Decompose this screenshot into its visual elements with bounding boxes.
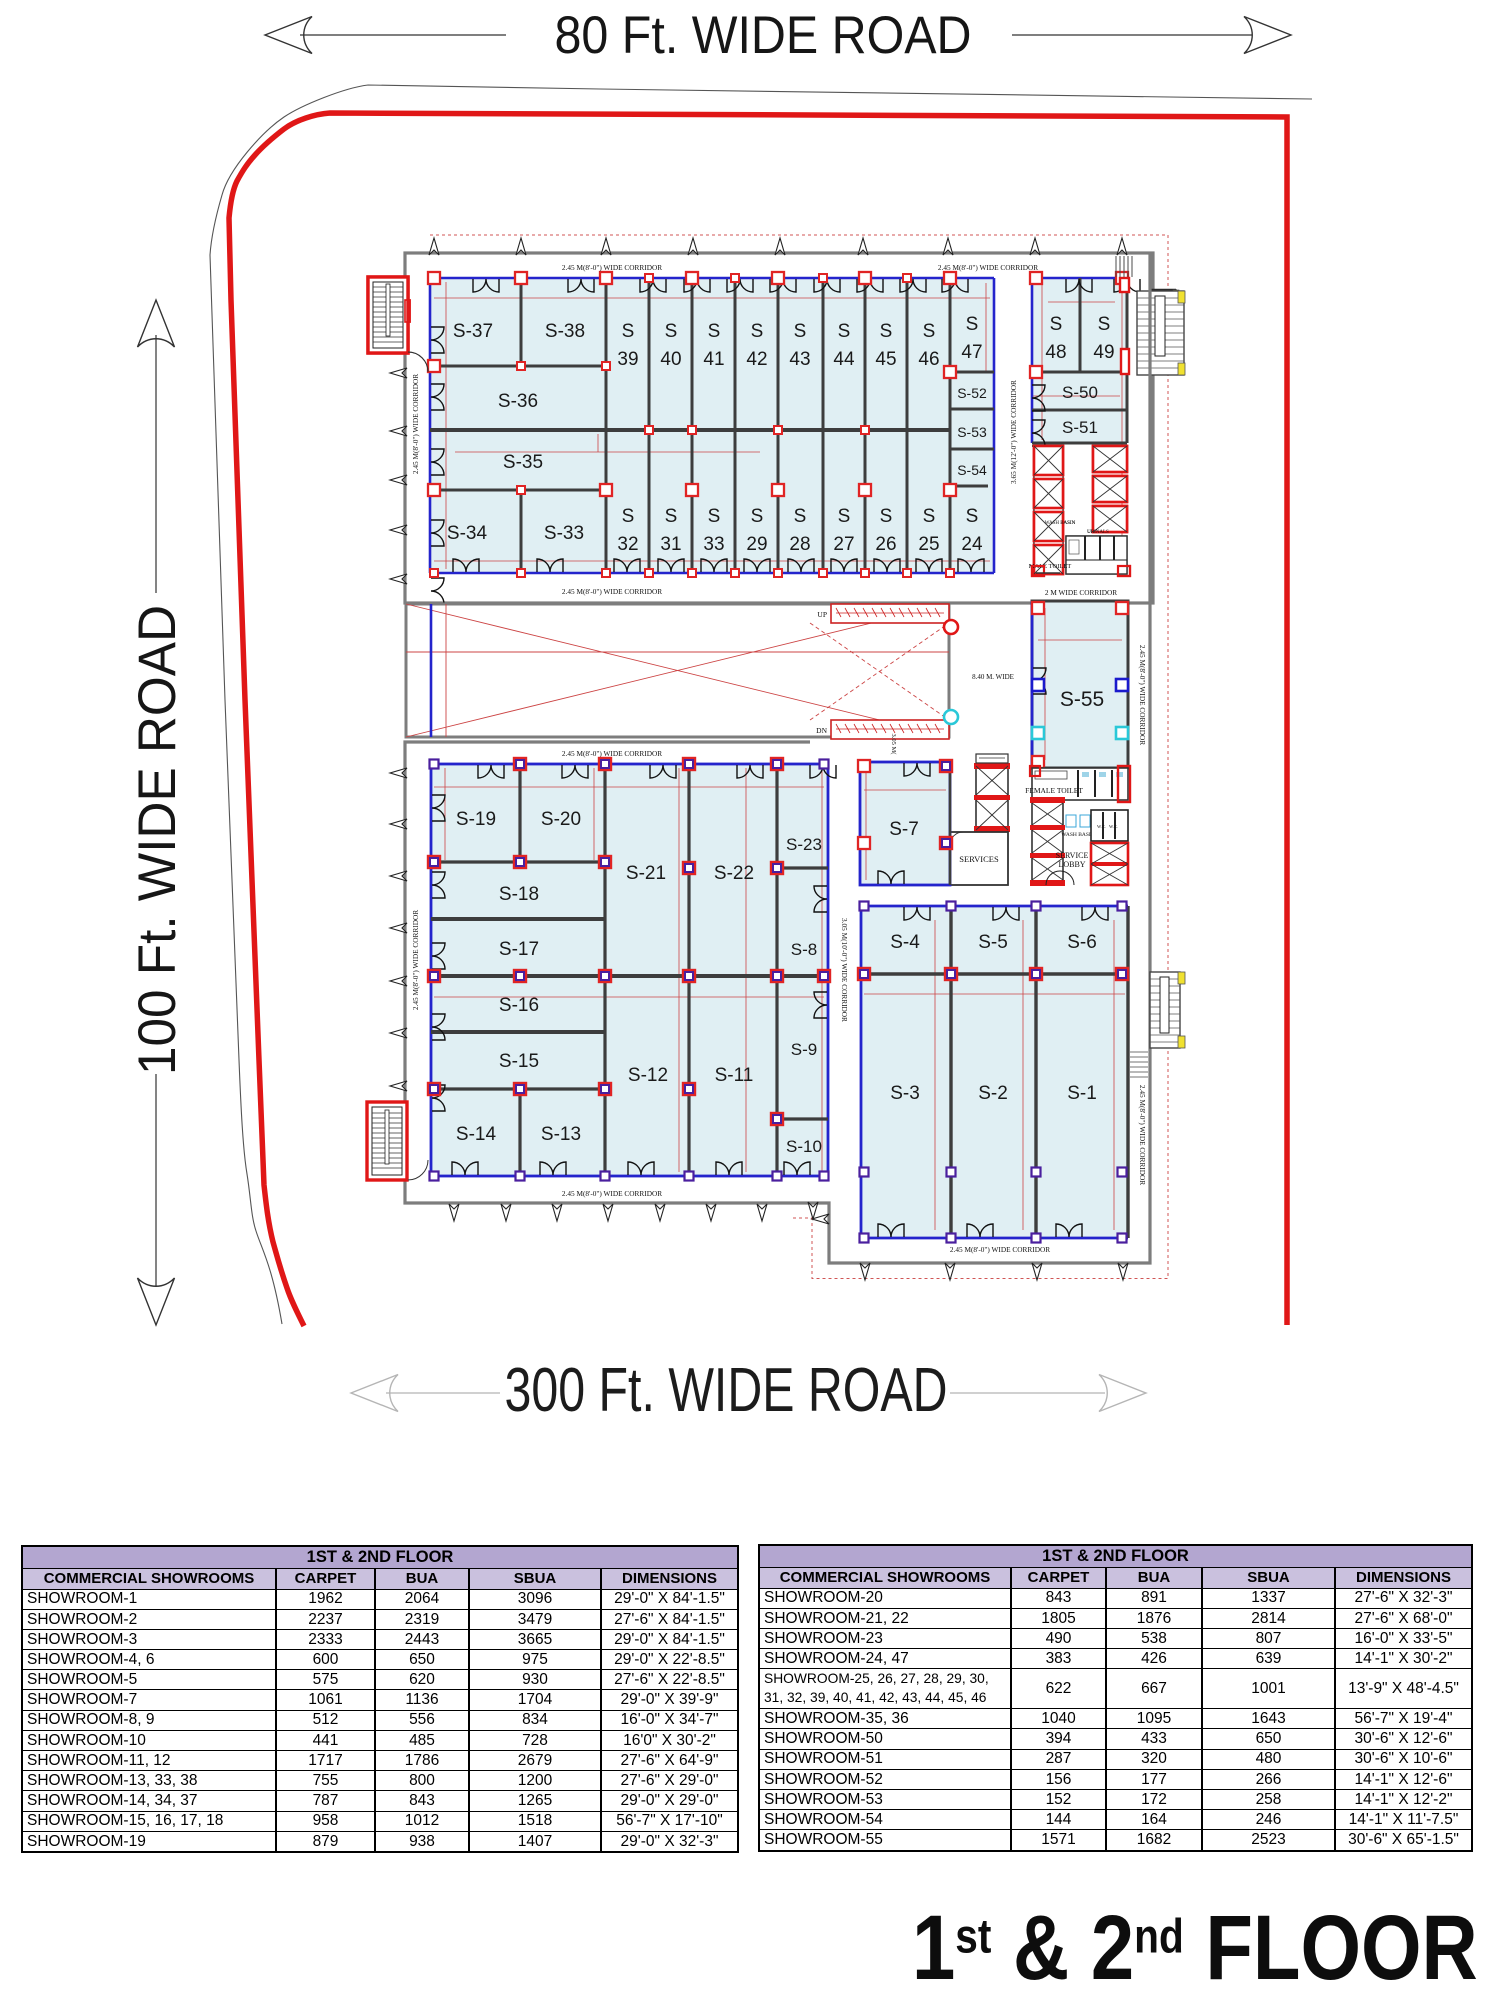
svg-text:S: S: [838, 506, 851, 527]
svg-text:S-50: S-50: [1062, 383, 1098, 402]
svg-text:URINALS: URINALS: [1087, 530, 1109, 535]
svg-text:S: S: [1050, 314, 1063, 335]
svg-text:S-17: S-17: [499, 939, 539, 960]
svg-text:42: 42: [746, 349, 767, 370]
svg-text:3.05 M(: 3.05 M(: [890, 734, 897, 755]
svg-text:S-51: S-51: [1062, 418, 1098, 437]
svg-text:FEMALE TOILET: FEMALE TOILET: [1025, 786, 1083, 795]
svg-text:3.05 M(10'-0") WIDE CORRIDOR: 3.05 M(10'-0") WIDE CORRIDOR: [840, 918, 849, 1022]
svg-text:33: 33: [703, 534, 724, 555]
svg-text:8.40 M. WIDE: 8.40 M. WIDE: [972, 673, 1014, 681]
svg-text:S: S: [838, 321, 851, 342]
svg-text:S-6: S-6: [1067, 932, 1097, 953]
svg-text:S: S: [794, 321, 807, 342]
svg-text:49: 49: [1093, 342, 1114, 363]
svg-text:S-9: S-9: [791, 1040, 817, 1059]
svg-text:S-54: S-54: [957, 462, 987, 478]
svg-text:2.45 M(8'-0") WIDE CORRIDOR: 2.45 M(8'-0") WIDE CORRIDOR: [411, 374, 420, 474]
svg-text:80 Ft. WIDE ROAD: 80 Ft. WIDE ROAD: [555, 6, 972, 65]
svg-text:2.45 M(8'-0") WIDE CORRIDOR: 2.45 M(8'-0") WIDE CORRIDOR: [562, 263, 662, 272]
svg-text:S-36: S-36: [498, 391, 538, 412]
svg-text:24: 24: [961, 534, 983, 555]
svg-text:S-55: S-55: [1060, 688, 1104, 711]
svg-text:S: S: [751, 506, 764, 527]
svg-text:S-38: S-38: [545, 321, 585, 342]
svg-text:SERVICES: SERVICES: [959, 854, 999, 864]
svg-text:S-53: S-53: [957, 424, 987, 440]
svg-text:S-2: S-2: [978, 1083, 1008, 1104]
svg-text:25: 25: [918, 534, 939, 555]
svg-text:S-13: S-13: [541, 1124, 581, 1145]
svg-text:47: 47: [961, 342, 982, 363]
svg-text:2.45 M(8'-0") WIDE CORRIDOR: 2.45 M(8'-0") WIDE CORRIDOR: [938, 263, 1038, 272]
svg-text:2 M WIDE CORRIDOR: 2 M WIDE CORRIDOR: [1045, 588, 1117, 597]
svg-text:S-21: S-21: [626, 863, 666, 884]
svg-text:W.C.: W.C.: [1097, 824, 1106, 829]
svg-text:S-8: S-8: [791, 940, 817, 959]
svg-text:UP: UP: [817, 610, 827, 619]
svg-text:S-52: S-52: [957, 385, 987, 401]
svg-text:2.45 M(8'-0") WIDE CORRIDOR: 2.45 M(8'-0") WIDE CORRIDOR: [411, 910, 420, 1010]
svg-text:W.C.: W.C.: [1109, 824, 1118, 829]
svg-text:S: S: [794, 506, 807, 527]
svg-text:WASH BASIN: WASH BASIN: [1045, 521, 1076, 526]
svg-text:32: 32: [617, 534, 638, 555]
svg-text:S: S: [923, 506, 936, 527]
svg-text:S-23: S-23: [786, 835, 822, 854]
svg-text:29: 29: [746, 534, 767, 555]
svg-text:39: 39: [617, 349, 638, 370]
svg-text:44: 44: [833, 349, 855, 370]
svg-text:LOBBY: LOBBY: [1058, 860, 1085, 869]
svg-text:S-14: S-14: [456, 1124, 497, 1145]
svg-text:S: S: [923, 321, 936, 342]
svg-text:S-5: S-5: [978, 932, 1008, 953]
svg-text:31: 31: [660, 534, 681, 555]
svg-text:S-12: S-12: [628, 1065, 668, 1086]
svg-text:S-16: S-16: [499, 995, 539, 1016]
svg-text:S-19: S-19: [456, 809, 496, 830]
svg-text:28: 28: [789, 534, 810, 555]
svg-text:S-22: S-22: [714, 863, 754, 884]
svg-text:46: 46: [918, 349, 939, 370]
svg-text:SERVICE: SERVICE: [1056, 851, 1089, 860]
svg-text:43: 43: [789, 349, 810, 370]
svg-text:41: 41: [703, 349, 724, 370]
svg-text:300 Ft. WIDE ROAD: 300 Ft. WIDE ROAD: [505, 1356, 948, 1425]
svg-text:2.45 M(8'-0") WIDE CORRIDOR: 2.45 M(8'-0") WIDE CORRIDOR: [1138, 645, 1147, 745]
svg-text:S-15: S-15: [499, 1051, 539, 1072]
svg-text:S: S: [665, 321, 678, 342]
svg-text:S: S: [966, 506, 979, 527]
svg-text:40: 40: [660, 349, 681, 370]
svg-text:27: 27: [833, 534, 854, 555]
svg-text:S-4: S-4: [890, 932, 920, 953]
svg-text:S: S: [622, 506, 635, 527]
svg-text:S-11: S-11: [715, 1065, 754, 1086]
svg-text:S: S: [966, 314, 979, 335]
svg-text:45: 45: [875, 349, 896, 370]
svg-text:WASH BASIN: WASH BASIN: [1061, 832, 1094, 838]
svg-text:S-20: S-20: [541, 809, 581, 830]
svg-text:2.45 M(8'-0") WIDE CORRIDOR: 2.45 M(8'-0") WIDE CORRIDOR: [950, 1245, 1050, 1254]
svg-text:26: 26: [875, 534, 896, 555]
svg-text:S: S: [751, 321, 764, 342]
svg-text:2.45 M(8'-0") WIDE CORRIDOR: 2.45 M(8'-0") WIDE CORRIDOR: [1138, 1085, 1147, 1185]
svg-text:S: S: [622, 321, 635, 342]
svg-text:S: S: [708, 321, 721, 342]
svg-text:S-18: S-18: [499, 884, 539, 905]
svg-text:2.45 M(8'-0") WIDE CORRIDOR: 2.45 M(8'-0") WIDE CORRIDOR: [562, 587, 662, 596]
svg-text:S-3: S-3: [890, 1083, 920, 1104]
svg-text:2.45 M(8'-0") WIDE CORRIDOR: 2.45 M(8'-0") WIDE CORRIDOR: [562, 1189, 662, 1198]
svg-text:2.45 M(8'-0") WIDE CORRIDOR: 2.45 M(8'-0") WIDE CORRIDOR: [562, 749, 662, 758]
svg-text:48: 48: [1045, 342, 1066, 363]
svg-text:S: S: [1098, 314, 1111, 335]
svg-text:S-1: S-1: [1067, 1083, 1097, 1104]
svg-text:S-10: S-10: [786, 1137, 822, 1156]
svg-text:S-33: S-33: [544, 523, 584, 544]
svg-text:S-7: S-7: [889, 819, 919, 840]
svg-text:S-35: S-35: [503, 452, 543, 473]
svg-text:100 Ft. WIDE ROAD: 100 Ft. WIDE ROAD: [128, 605, 187, 1075]
svg-text:DN: DN: [816, 726, 827, 735]
svg-text:S: S: [880, 506, 893, 527]
svg-text:S: S: [708, 506, 721, 527]
svg-text:S-37: S-37: [453, 321, 493, 342]
svg-text:S-34: S-34: [447, 523, 488, 544]
svg-text:S: S: [880, 321, 893, 342]
svg-text:S: S: [665, 506, 678, 527]
svg-text:3.65 M(12'-0") WIDE CORRIDOR: 3.65 M(12'-0") WIDE CORRIDOR: [1009, 380, 1018, 484]
